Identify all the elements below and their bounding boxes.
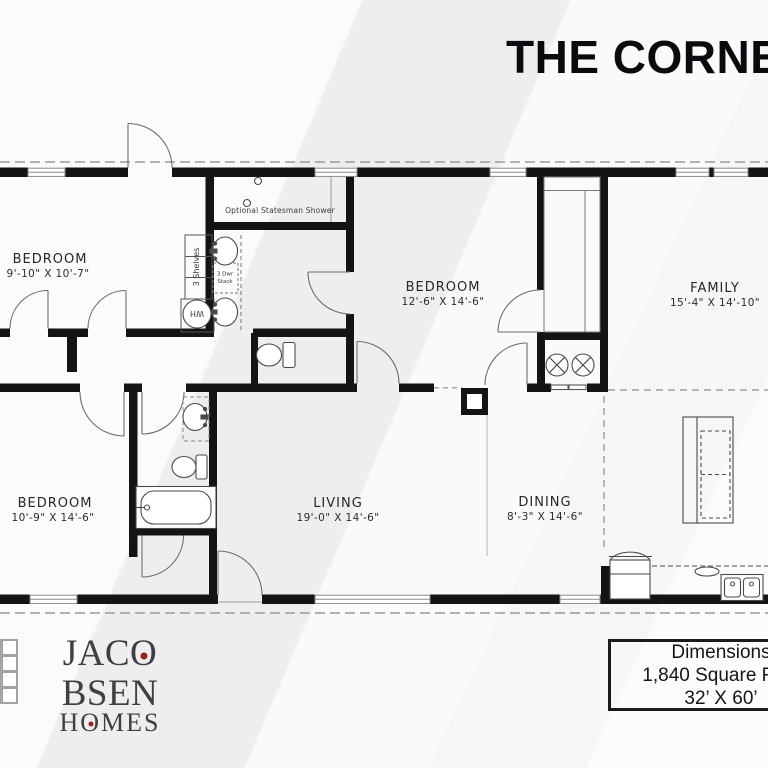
- logo-o-dot: O: [80, 710, 101, 736]
- logo-seg: H: [59, 708, 80, 737]
- room-dims-living: 19'-0" X 14'-6": [297, 512, 380, 524]
- sink-3: [183, 404, 208, 431]
- dimensions-box: Dimensions 1,840 Square Feet 32’ X 60’: [608, 639, 768, 711]
- range: [610, 552, 650, 599]
- room-dims-bedroom1: 9'-10" X 10'-7": [7, 268, 90, 280]
- room-label-bedroom2: BEDROOM: [406, 280, 481, 295]
- logo-o-dot: O: [130, 634, 157, 674]
- toilet-1: [257, 343, 296, 368]
- shelves-label: 3 Shelves: [192, 248, 201, 287]
- counter-item: [695, 567, 719, 576]
- room-dims-bedroom3: 10'-9" X 14'-6": [12, 512, 95, 524]
- doors: [10, 124, 586, 603]
- room-dims-bedroom2: 12'-6" X 14'-6": [402, 296, 485, 308]
- sink-1: [210, 237, 238, 265]
- logo-grid-icon: [0, 640, 18, 704]
- walls: [0, 168, 768, 605]
- shower-label: Optional Statesman Shower: [225, 206, 336, 215]
- water-heater-label: WH: [190, 309, 204, 318]
- page: { "title": "THE CORNER", "plan": { "room…: [0, 0, 768, 768]
- bathtub: [136, 487, 216, 529]
- stack-label-1: 3 Dwr: [217, 272, 234, 278]
- toilet-2: [172, 455, 207, 479]
- logo-line1: JACOBSEN: [20, 634, 200, 714]
- logo-seg: JAC: [63, 633, 130, 674]
- drawer-stack: [213, 263, 238, 293]
- bedroom2-closet: [544, 177, 600, 332]
- kitchen-counter: [609, 552, 768, 600]
- room-labels: BEDROOM 9'-10" X 10'-7" BEDROOM 12'-6" X…: [7, 252, 761, 524]
- overall-size: 32’ X 60’: [611, 687, 768, 710]
- logo-line2: HOMES: [20, 710, 200, 736]
- room-dims-family: 15'-4" X 14'-10": [670, 297, 760, 309]
- brand-logo: JACOBSEN HOMES: [0, 634, 280, 724]
- logo-seg: MES: [101, 708, 160, 737]
- room-label-bedroom3: BEDROOM: [18, 496, 93, 511]
- logo-text: JACOBSEN HOMES: [20, 634, 200, 736]
- room-label-family: FAMILY: [690, 281, 740, 296]
- shower-valve-icon: [255, 178, 262, 185]
- kitchen-island: [683, 417, 733, 523]
- room-label-bedroom1: BEDROOM: [13, 252, 88, 267]
- washer-icon: [546, 354, 568, 376]
- column: [464, 391, 485, 412]
- room-label-dining: DINING: [518, 495, 571, 510]
- stack-label-2: Stack: [217, 279, 233, 285]
- kitchen-sink: [721, 575, 763, 601]
- room-label-living: LIVING: [313, 496, 363, 511]
- square-footage: 1,840 Square Feet: [611, 664, 768, 687]
- room-dims-dining: 8'-3" X 14'-6": [507, 511, 583, 523]
- dryer-icon: [572, 354, 594, 376]
- eave-lines: [0, 162, 768, 613]
- dimensions-title: Dimensions: [611, 641, 768, 664]
